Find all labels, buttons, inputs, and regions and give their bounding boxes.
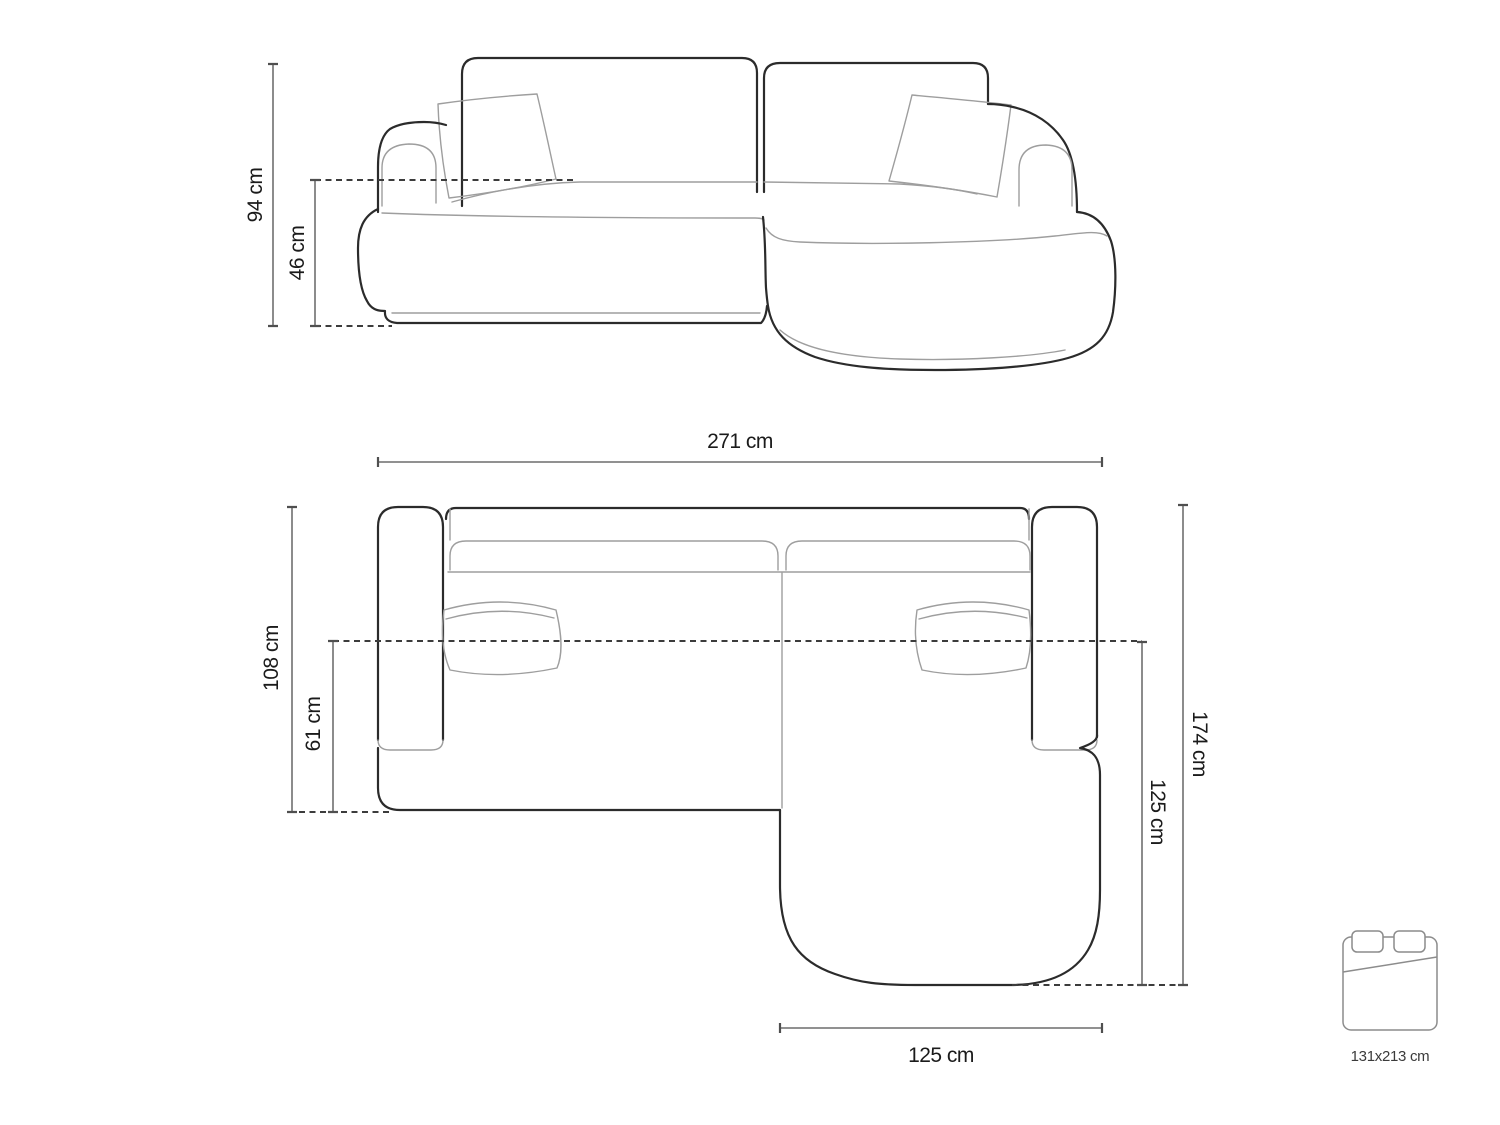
sleeping-area-info: 131x213 cm: [1343, 931, 1437, 1065]
front-right-armrest-arch: [1019, 145, 1072, 206]
dim-label-total-depth: 174 cm: [1188, 711, 1211, 777]
plan-body-front-edge: [378, 748, 780, 810]
dim-label-total-width: 271 cm: [707, 430, 773, 453]
bed-icon-fold-line: [1343, 957, 1437, 972]
bed-pillow-right-icon: [1394, 931, 1425, 952]
dim-label-total-height: 94 cm: [244, 168, 267, 223]
front-right-pillow: [889, 95, 1011, 197]
bed-pillow-left-icon: [1352, 931, 1383, 952]
diagram-svg: 94 cm 46 cm: [0, 0, 1500, 1125]
plan-back-cushion-right: [786, 541, 1030, 570]
front-left-base-outline: [358, 209, 767, 323]
front-seat-under-edge: [382, 213, 764, 220]
dim-label-seat-depth: 61 cm: [302, 697, 325, 752]
plan-pillow-right: [915, 602, 1030, 675]
plan-back-cushion-left: [450, 541, 778, 570]
plan-left-armrest-bottom: [378, 740, 443, 750]
plan-backrest-top-edge: [446, 508, 1029, 519]
front-left-pillow: [438, 94, 556, 198]
dim-label-chaise-width: 125 cm: [908, 1044, 974, 1067]
front-right-backrest: [764, 63, 988, 192]
front-left-backrest: [462, 58, 757, 206]
front-seat-top-edge-left: [452, 182, 757, 202]
front-left-armrest-arch: [382, 144, 436, 206]
front-elevation-view: [315, 58, 1115, 370]
front-seat-top-edge-right: [764, 182, 977, 194]
sleeping-area-size-label: 131x213 cm: [1351, 1048, 1430, 1065]
top-plan-view: [299, 507, 1190, 985]
plan-chaise-outline: [780, 735, 1100, 985]
plan-right-armrest: [1032, 507, 1097, 740]
plan-pillow-left: [442, 602, 561, 675]
front-chaise-plinth-line: [780, 330, 1065, 360]
plan-pillow-left-fold: [446, 611, 554, 619]
dim-label-body-depth: 108 cm: [260, 625, 283, 691]
front-chaise-cushion-edge: [766, 228, 1107, 243]
dim-label-seat-height: 46 cm: [286, 226, 309, 281]
dim-label-chaise-length: 125 cm: [1146, 779, 1169, 845]
plan-left-armrest: [378, 507, 443, 740]
front-right-armrest-outline: [988, 104, 1077, 212]
front-view-dimensions: 94 cm 46 cm: [244, 64, 320, 326]
plan-pillow-right-fold: [919, 611, 1027, 619]
sofa-dimension-diagram: 94 cm 46 cm: [0, 0, 1500, 1125]
